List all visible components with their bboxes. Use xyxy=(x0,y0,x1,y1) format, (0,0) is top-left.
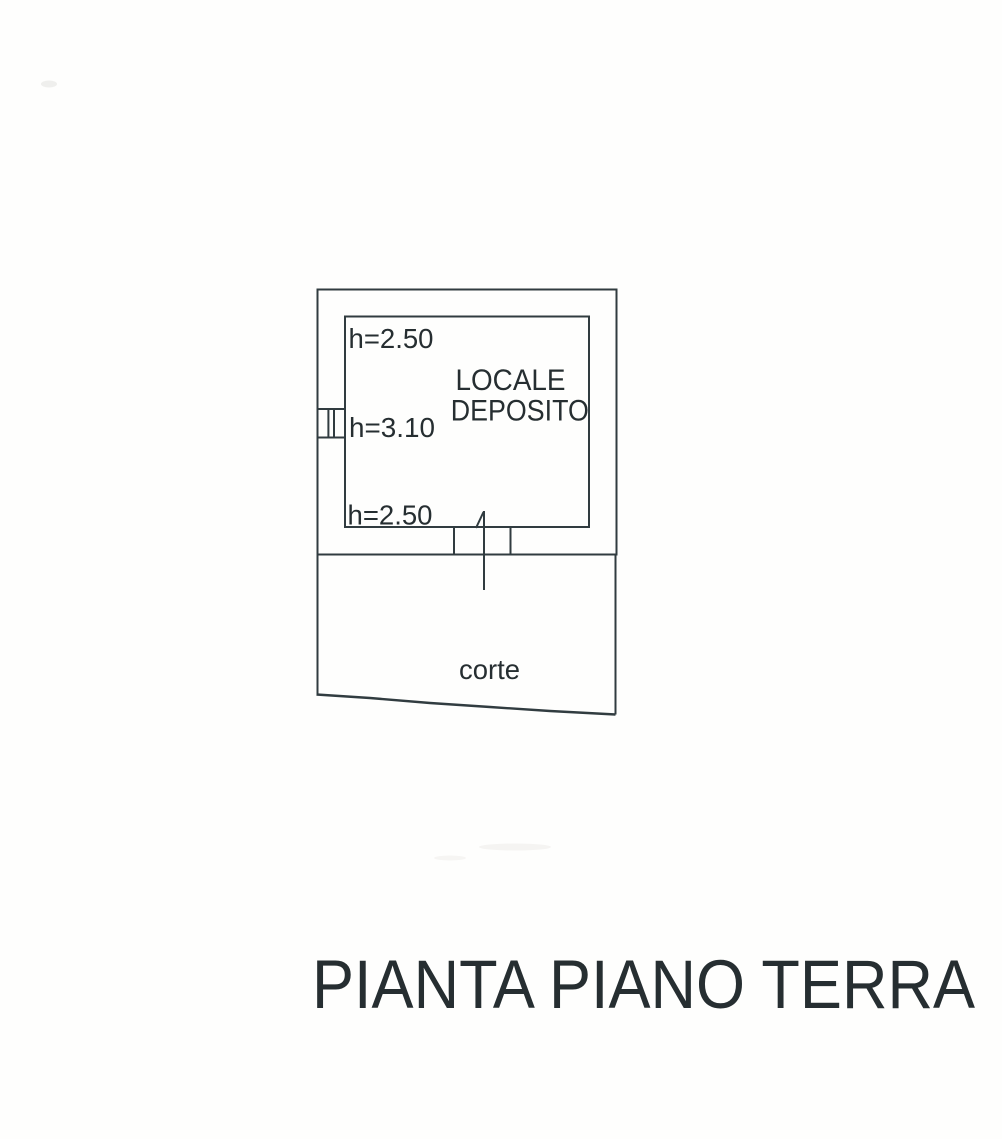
svg-text:PIANTA PIANO TERRA: PIANTA PIANO TERRA xyxy=(312,946,975,1023)
svg-text:h=2.50: h=2.50 xyxy=(348,500,433,531)
svg-text:DEPOSITO: DEPOSITO xyxy=(451,395,589,428)
svg-text:corte: corte xyxy=(459,654,520,685)
svg-text:h=2.50: h=2.50 xyxy=(349,323,434,354)
svg-text:h=3.10: h=3.10 xyxy=(349,412,435,443)
svg-text:LOCALE: LOCALE xyxy=(456,364,566,397)
